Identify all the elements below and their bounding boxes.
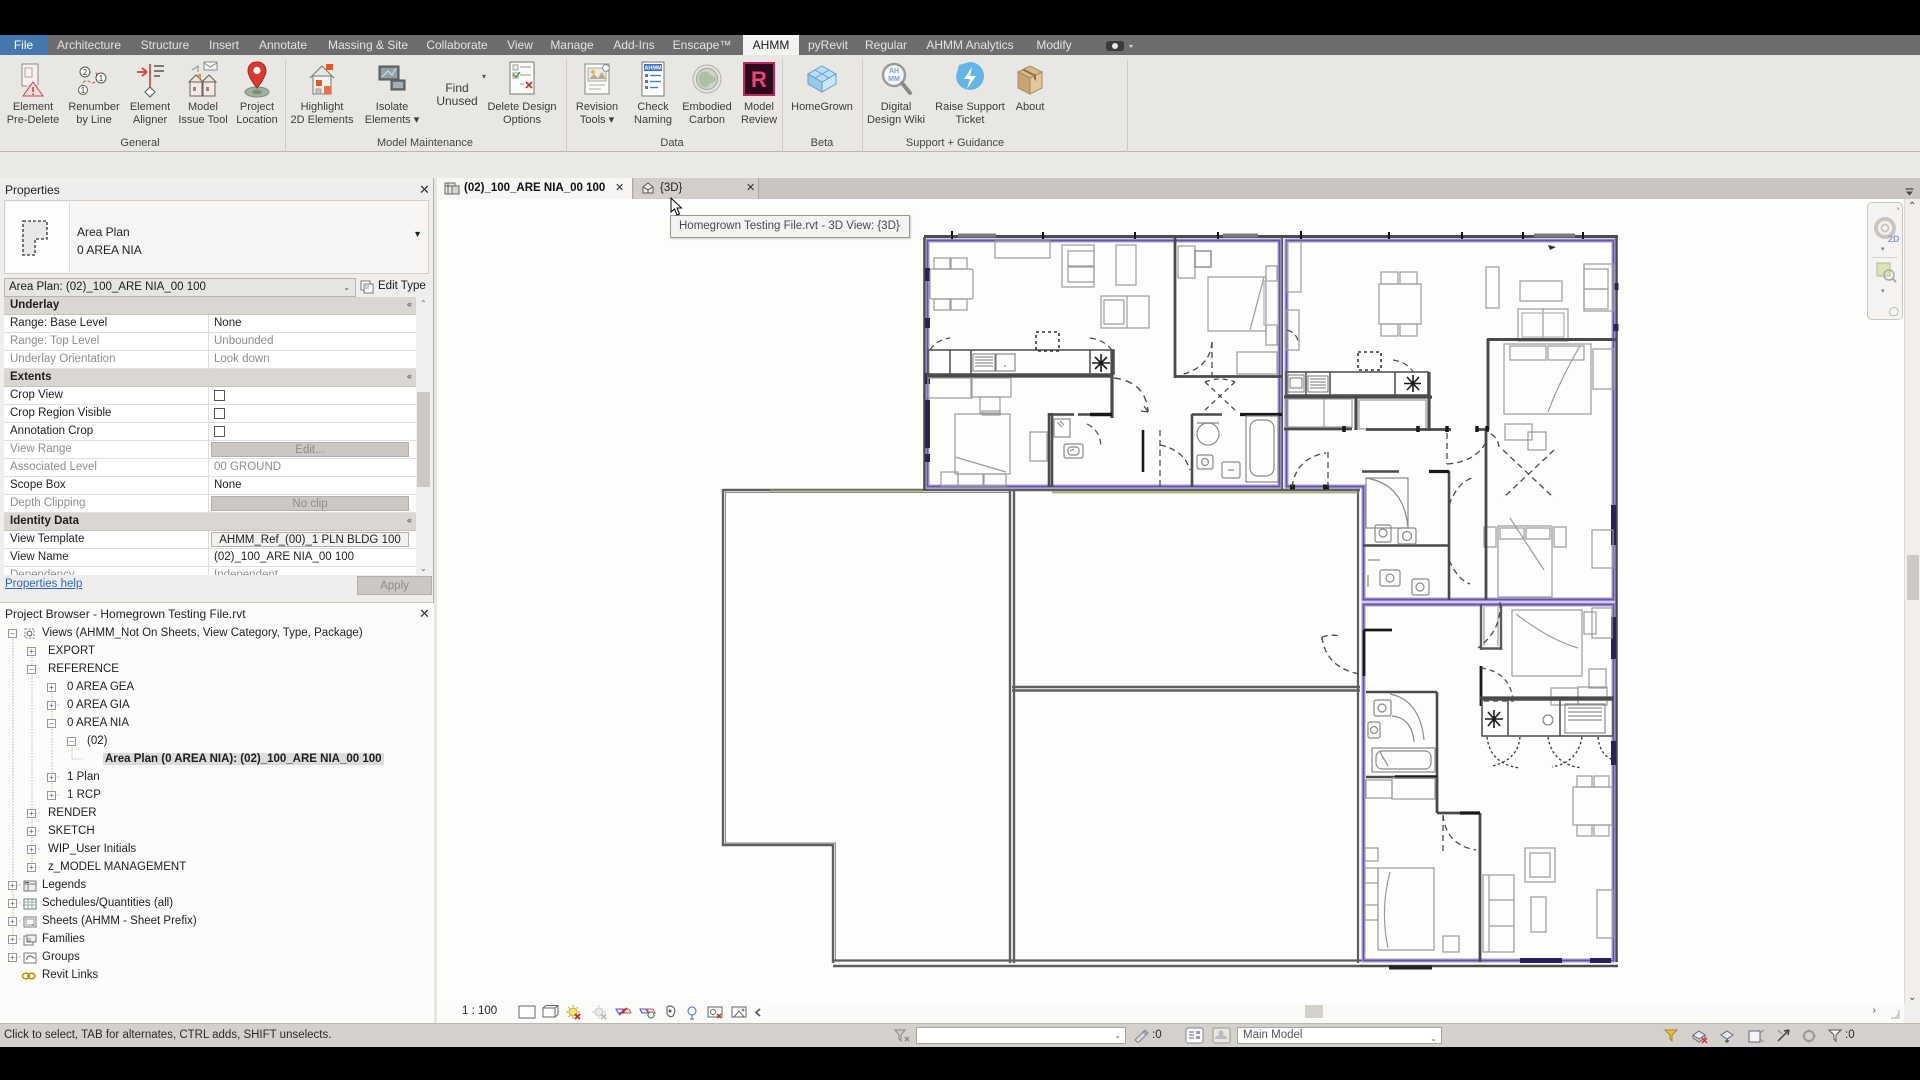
svg-text:MM: MM — [888, 76, 900, 83]
svg-text:AHMM: AHMM — [644, 66, 662, 72]
svg-text:AH: AH — [889, 68, 899, 75]
svg-text:R: R — [751, 67, 767, 92]
svg-text:2D: 2D — [1888, 234, 1900, 244]
svg-text:2: 2 — [83, 68, 88, 77]
svg-text:1: 1 — [99, 74, 104, 83]
svg-text:1: 1 — [81, 86, 86, 95]
